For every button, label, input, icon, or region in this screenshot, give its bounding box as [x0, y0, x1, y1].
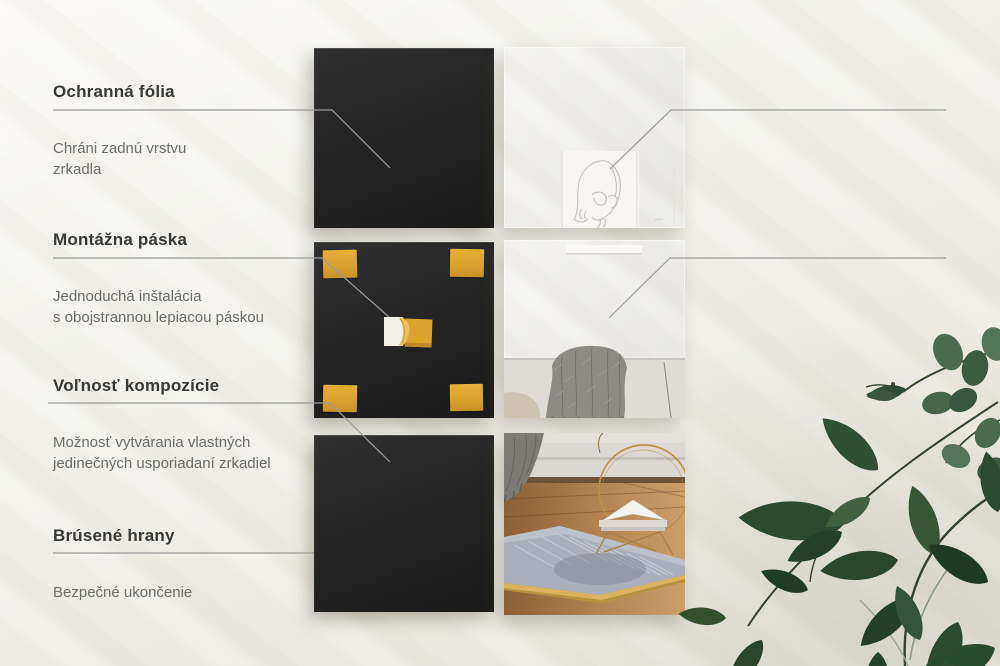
- back-tile-top: [314, 48, 494, 228]
- feature-description: Bezpečné ukončenie: [53, 582, 323, 603]
- feature-ground-edges: Brúsené hrany Bezpečné ukončenie: [53, 526, 323, 603]
- feature-description: Chráni zadnú vrstvu zrkadla: [53, 138, 323, 180]
- feature-description: Jednoduchá inštalácia s obojstrannou lep…: [53, 286, 323, 328]
- green-plant-branches: [650, 315, 1000, 666]
- feature-title: Voľnosť kompozície: [53, 376, 323, 396]
- feature-mounting-tape: Montážna páska Jednoduchá inštalácia s o…: [53, 230, 323, 328]
- feature-description: Možnosť vytvárania vlastných jedinečných…: [53, 432, 323, 474]
- mirror-tile-middle: [504, 240, 685, 418]
- mirror-tile-top: [504, 47, 685, 228]
- living-room-reflection: [504, 433, 685, 615]
- feature-title: Brúsené hrany: [53, 526, 323, 546]
- feature-title: Ochranná fólia: [53, 82, 323, 102]
- mounting-tape-bottom-right: [450, 384, 483, 412]
- mounting-tape-top-left: [323, 250, 358, 279]
- mirror-tile-bottom: [504, 433, 685, 615]
- mounting-tape-center-peeled: [378, 313, 440, 351]
- artist-signature: [654, 219, 663, 220]
- back-tile-bottom: [314, 435, 494, 612]
- back-tile-middle: [314, 242, 494, 418]
- feature-protective-film: Ochranná fólia Chráni zadnú vrstvu zrkad…: [53, 82, 323, 180]
- face-line-art-reflection: [504, 47, 685, 228]
- mounting-tape-bottom-left: [323, 385, 357, 413]
- feature-title: Montážna páska: [53, 230, 323, 250]
- mirror-tiles-infographic: Ochranná fólia Chráni zadnú vrstvu zrkad…: [0, 0, 1000, 666]
- sofa-blanket-reflection: [504, 240, 685, 418]
- mounting-tape-top-right: [450, 249, 484, 278]
- feature-composition-freedom: Voľnosť kompozície Možnosť vytvárania vl…: [53, 376, 323, 474]
